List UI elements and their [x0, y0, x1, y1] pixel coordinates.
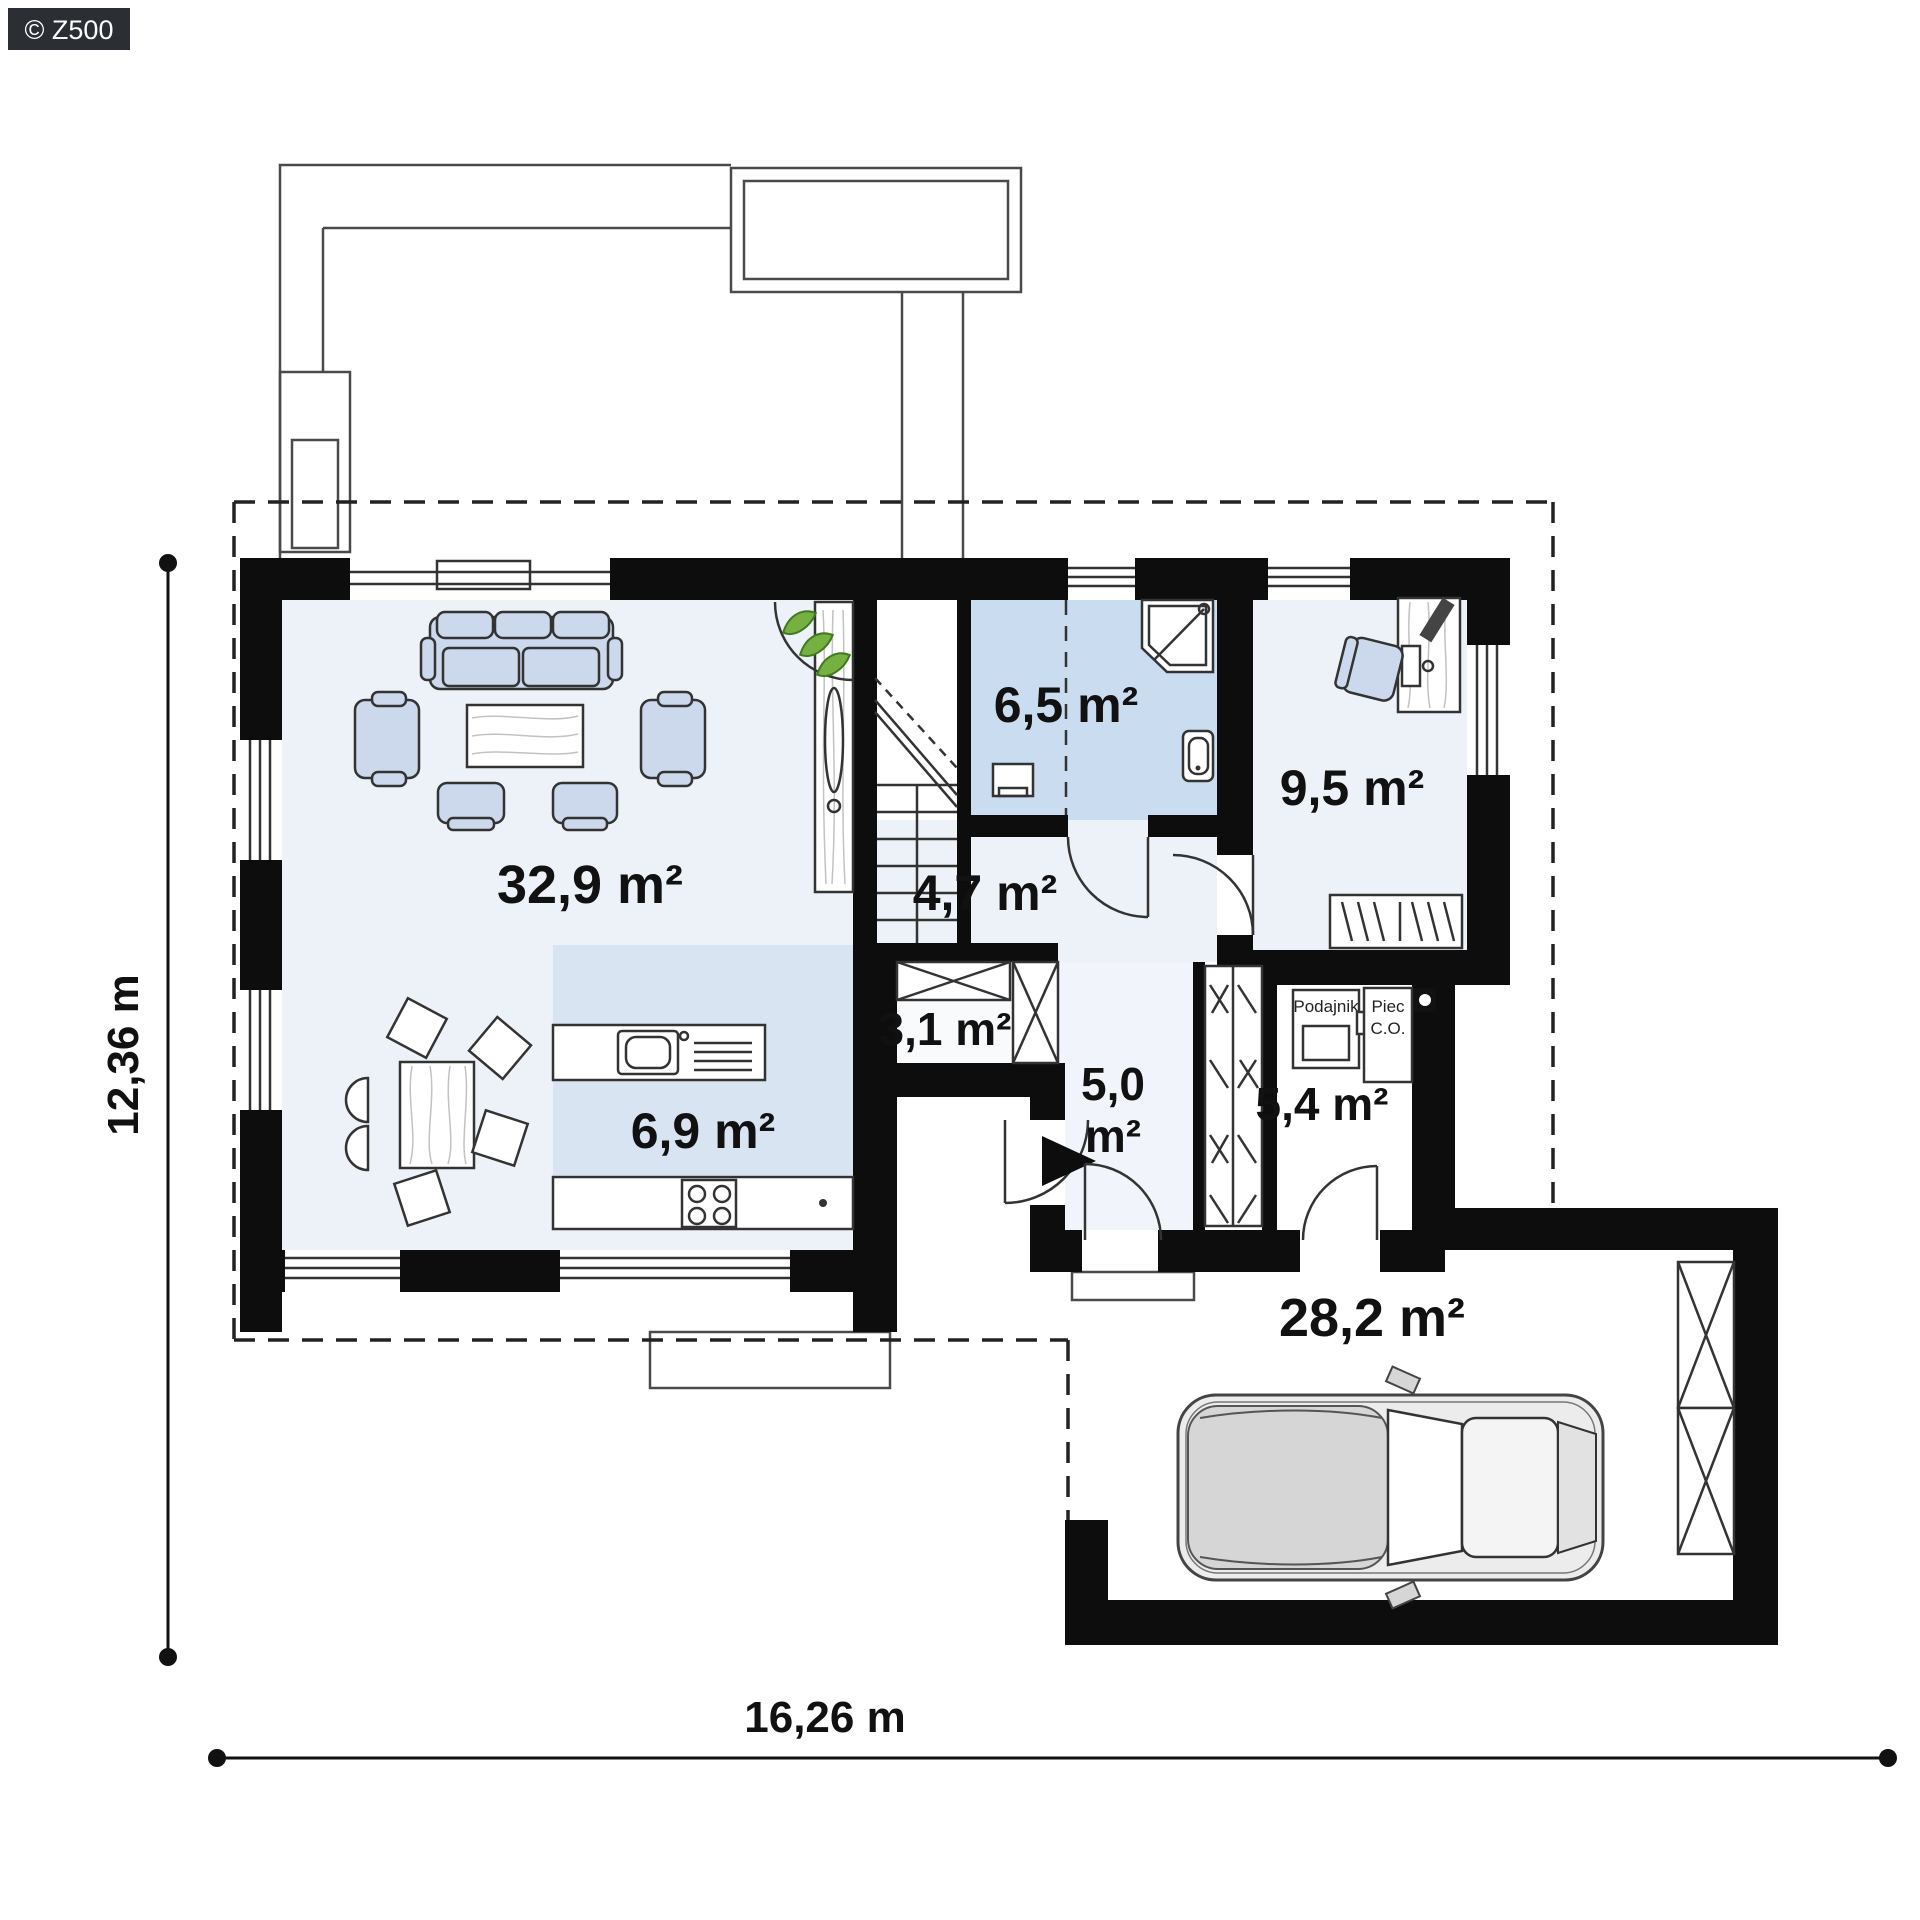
- pantry-bottom-wall: [853, 1063, 1065, 1097]
- dining-table: [400, 1062, 474, 1168]
- car-mirror-top: [1386, 1367, 1420, 1394]
- kitchen-right-wall: [853, 943, 897, 1332]
- vestibule-area-value: 5,0: [1081, 1058, 1145, 1110]
- height-dimension-label: 12,36 m: [99, 974, 148, 1135]
- entrance-stoop-outline: [1072, 1272, 1194, 1300]
- office-wall-left: [1217, 600, 1253, 855]
- office-right-window: [1477, 645, 1497, 775]
- garage-bottom-wall: [1065, 1600, 1778, 1645]
- living-room-area-label: 32,9 m²: [497, 855, 683, 915]
- pouf-left: [438, 783, 504, 830]
- terrace-door: [350, 561, 610, 589]
- sofa: [421, 612, 622, 689]
- hall-area-label: 4,7 m²: [913, 865, 1058, 921]
- width-dimension-label: 16,26 m: [744, 1693, 905, 1742]
- furnace-label-1: Piec: [1371, 997, 1405, 1016]
- stair-wall-left: [853, 600, 877, 962]
- kitchen-window: [560, 1258, 790, 1278]
- kitchen-area-label: 6,9 m²: [631, 1103, 776, 1159]
- keyboard: [1402, 646, 1420, 686]
- left-window-1: [250, 740, 270, 860]
- vestibule-wardrobe: [1205, 966, 1262, 1226]
- feeder-label: Podajnik: [1293, 997, 1359, 1016]
- office-area-label: 9,5 m²: [1280, 760, 1425, 816]
- watermark-label: © Z500: [25, 15, 114, 45]
- terrace-pillar: [280, 372, 350, 552]
- car-roof: [1462, 1418, 1558, 1557]
- pouf-right: [553, 783, 617, 830]
- armchair-right: [641, 692, 705, 786]
- car-windshield: [1388, 1410, 1462, 1565]
- garage-area-label: 28,2 m²: [1279, 1288, 1465, 1348]
- bottom-window-1: [285, 1258, 400, 1278]
- car: [1178, 1367, 1603, 1609]
- skylight-outline: [731, 168, 1021, 292]
- kitchen-counter: [553, 1177, 853, 1229]
- vestibule-area-unit: m²: [1085, 1110, 1141, 1162]
- office-top-window: [1268, 568, 1350, 586]
- car-hood: [1188, 1406, 1388, 1569]
- bathroom-window: [1068, 568, 1135, 586]
- floor-plan: Podajnik Piec C.O.: [0, 0, 1920, 1920]
- vestibule-west-wall: [1030, 1097, 1065, 1120]
- boiler-area-label: 5,4 m²: [1256, 1078, 1389, 1130]
- garage-left-stub-wall: [1065, 1520, 1108, 1645]
- left-window-2: [250, 990, 270, 1110]
- garage-right-wall: [1733, 1208, 1778, 1645]
- garage-sectional-door: [1678, 1262, 1734, 1554]
- garage-top-wall: [1030, 1230, 1082, 1272]
- wall-left: [240, 558, 282, 740]
- bathroom-area-label: 6,5 m²: [994, 677, 1139, 733]
- coffee-table: [467, 705, 583, 767]
- pantry-area-label: 3,1 m²: [879, 1003, 1012, 1055]
- car-rear-window: [1558, 1422, 1596, 1553]
- boiler-garage-door: [1303, 1166, 1377, 1240]
- bathroom-sink: [1183, 731, 1213, 781]
- kitchen-island: [553, 1025, 765, 1080]
- bathroom-wall: [971, 815, 1068, 837]
- watermark: © Z500: [8, 8, 130, 50]
- toilet: [993, 764, 1033, 796]
- wall-right: [1467, 558, 1510, 645]
- office-wardrobe: [1330, 895, 1462, 948]
- office-desk: [1398, 598, 1460, 712]
- furnace-label-2: C.O.: [1371, 1019, 1406, 1038]
- armchair-left: [355, 692, 419, 786]
- wall-bottom: [240, 1250, 285, 1292]
